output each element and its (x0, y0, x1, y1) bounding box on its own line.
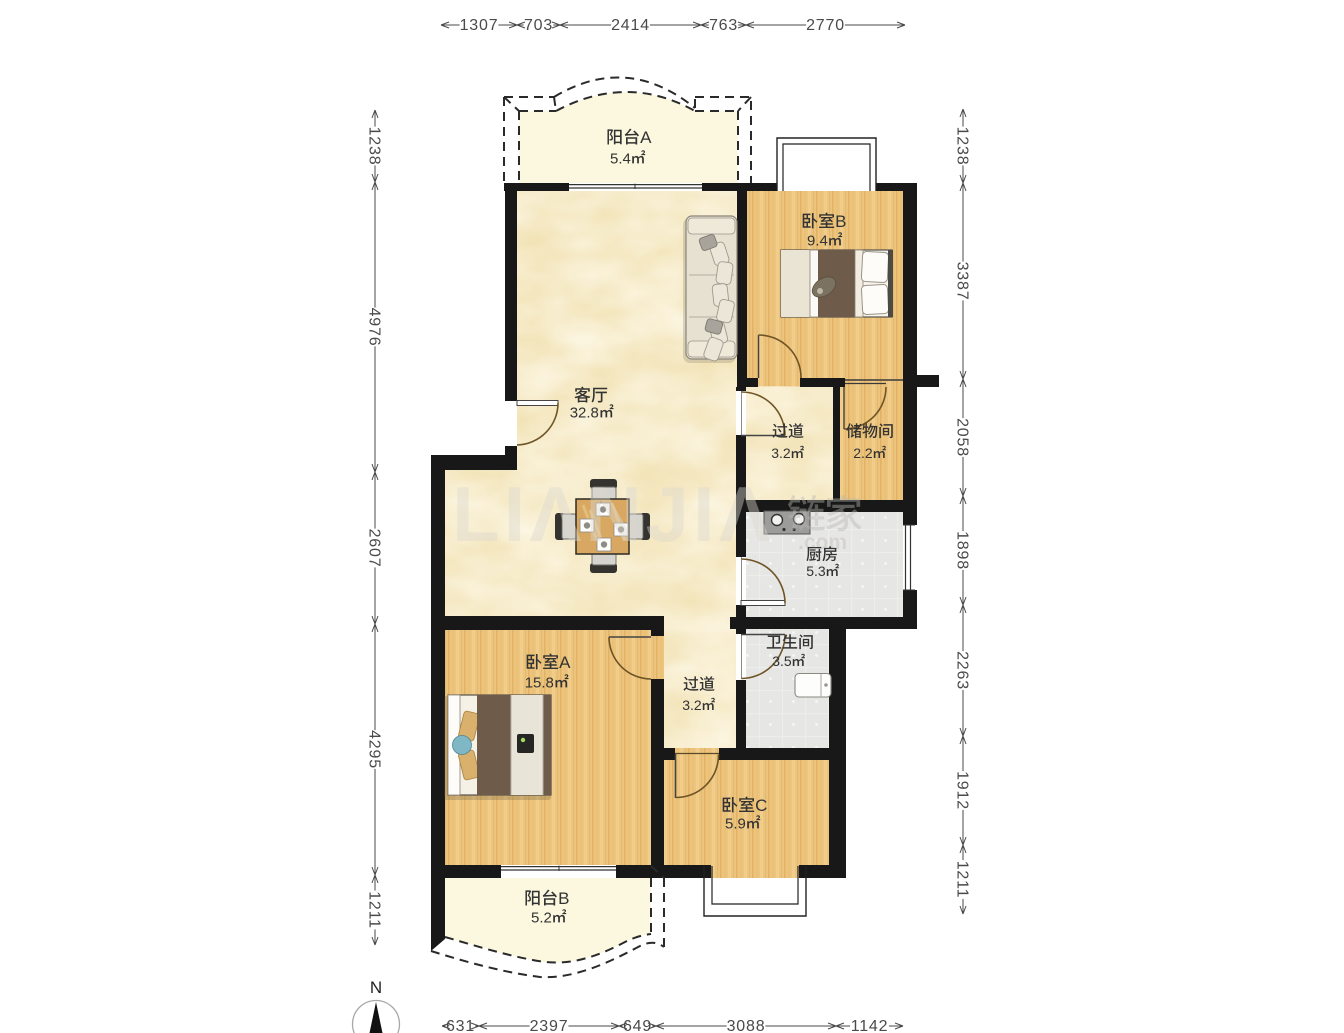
svg-text:9.4: 9.4 (807, 232, 828, 249)
svg-text:C: C (755, 796, 767, 815)
svg-text:1142: 1142 (851, 1018, 889, 1033)
svg-text:649: 649 (623, 1018, 652, 1033)
svg-text:2397: 2397 (530, 1018, 569, 1033)
svg-text:B: B (835, 212, 846, 231)
svg-text:1211: 1211 (954, 861, 971, 899)
svg-text:1898: 1898 (954, 531, 971, 570)
svg-text:3387: 3387 (954, 262, 971, 301)
svg-text:2263: 2263 (954, 651, 971, 690)
svg-text:1307: 1307 (460, 17, 499, 34)
svg-text:1912: 1912 (954, 771, 971, 810)
svg-text:LIΛNJIΛ: LIΛNJIΛ (452, 470, 775, 558)
svg-text:4295: 4295 (366, 730, 383, 769)
svg-text:5.3: 5.3 (806, 563, 826, 579)
svg-text:32.8: 32.8 (570, 404, 599, 421)
svg-text:B: B (558, 889, 569, 908)
svg-text:2414: 2414 (611, 17, 650, 34)
svg-text:3.2: 3.2 (682, 697, 702, 713)
svg-text:703: 703 (524, 17, 553, 34)
svg-text:2770: 2770 (806, 17, 845, 34)
svg-text:4976: 4976 (366, 308, 383, 347)
svg-text:15.8: 15.8 (525, 674, 554, 691)
svg-text:A: A (640, 128, 652, 147)
svg-text:N: N (370, 978, 382, 997)
svg-text:.com: .com (798, 531, 847, 554)
svg-text:1211: 1211 (366, 891, 383, 929)
svg-text:2607: 2607 (366, 529, 383, 568)
svg-text:1238: 1238 (366, 127, 383, 166)
svg-text:631: 631 (446, 1018, 475, 1033)
svg-text:3088: 3088 (727, 1018, 766, 1033)
svg-text:3.5: 3.5 (772, 653, 792, 669)
svg-text:5.2: 5.2 (531, 909, 552, 926)
svg-text:5.4: 5.4 (610, 150, 631, 167)
svg-text:3.2: 3.2 (771, 445, 791, 461)
svg-text:A: A (559, 653, 571, 672)
svg-text:763: 763 (709, 17, 738, 34)
svg-text:2058: 2058 (954, 418, 971, 457)
svg-text:5.9: 5.9 (725, 815, 746, 832)
svg-text:2.2: 2.2 (853, 445, 873, 461)
svg-text:1238: 1238 (954, 127, 971, 166)
